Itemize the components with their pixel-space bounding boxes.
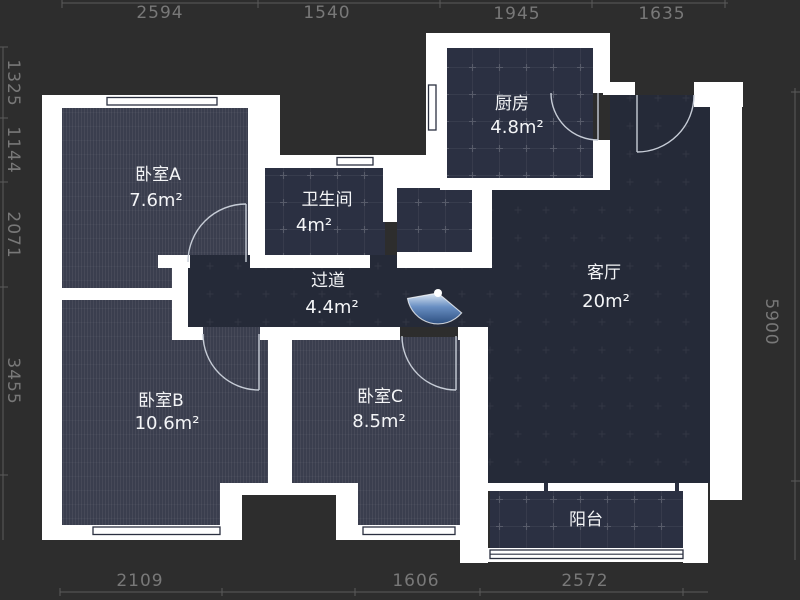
balcony-divider-tick	[544, 483, 548, 491]
ruler-label-left-2: 1144	[3, 126, 23, 173]
entry-door-dot	[434, 289, 442, 297]
room-bedroom-b-area: 10.6m²	[135, 413, 200, 434]
room-bedroom-a-area: 7.6m²	[129, 190, 182, 211]
window-bedroom-b	[93, 527, 220, 535]
floorplan: 2594 1540 1945 1635 1325 1144 2071 3455 …	[0, 0, 800, 600]
room-hallway-label: 过道	[311, 271, 345, 291]
room-kitchen-label: 厨房	[495, 94, 529, 114]
room-bedroom-a-label: 卧室A	[135, 165, 181, 185]
room-bathroom-area: 4m²	[296, 215, 332, 236]
ruler-label-bottom-1: 2109	[116, 571, 163, 591]
ruler-label-top-2: 1540	[303, 3, 350, 23]
room-living-label: 客厅	[587, 263, 621, 283]
ruler-label-left-3: 2071	[3, 211, 23, 258]
ruler-label-left-4: 3455	[3, 357, 23, 404]
room-living-area: 20m²	[582, 291, 630, 312]
room-hallway-area: 4.4m²	[305, 297, 358, 318]
room-closet-floor	[397, 188, 472, 252]
window-bedroom-c	[363, 527, 455, 535]
window-bedroom-a	[107, 98, 217, 106]
ruler-label-top-1: 2594	[136, 3, 183, 23]
window-kitchen	[429, 85, 437, 130]
room-bathroom-label: 卫生间	[302, 190, 353, 210]
room-bedroom-c-area: 8.5m²	[352, 411, 405, 432]
room-balcony-label: 阳台	[569, 510, 603, 530]
ruler-label-top-4: 1635	[638, 4, 685, 24]
ruler-label-top-3: 1945	[493, 4, 540, 24]
ruler-label-left-1: 1325	[3, 59, 23, 106]
ruler-label-bottom-3: 2572	[561, 571, 608, 591]
room-bedroom-c-label: 卧室C	[357, 387, 403, 407]
room-bedroom-b-label: 卧室B	[138, 391, 184, 411]
ruler-label-right-1: 5900	[761, 298, 781, 345]
ruler-label-bottom-2: 1606	[392, 571, 439, 591]
balcony-divider-tick	[675, 483, 679, 491]
room-kitchen-area: 4.8m²	[490, 117, 543, 138]
room-bathroom-floor	[265, 168, 385, 255]
floorplan-svg: 2594 1540 1945 1635 1325 1144 2071 3455 …	[0, 0, 800, 600]
window-bathroom	[337, 158, 373, 166]
